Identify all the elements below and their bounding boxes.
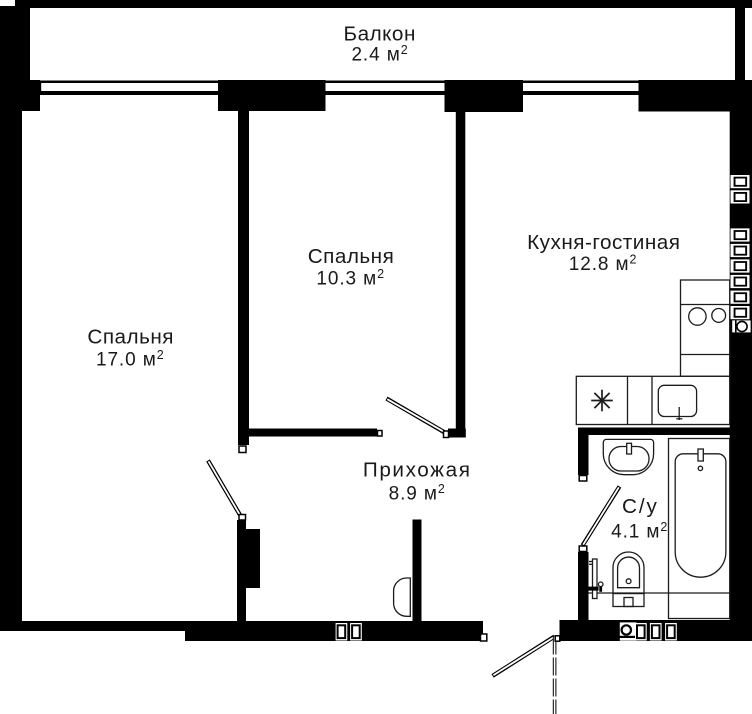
svg-text:2.4 м2: 2.4 м2 (351, 43, 408, 66)
svg-text:4.1 м2: 4.1 м2 (611, 520, 668, 543)
svg-text:Прихожая: Прихожая (363, 459, 472, 482)
svg-text:12.8 м2: 12.8 м2 (569, 253, 638, 276)
svg-text:8.9 м2: 8.9 м2 (389, 482, 446, 505)
svg-text:10.3 м2: 10.3 м2 (316, 267, 385, 290)
svg-text:Спальня: Спальня (308, 245, 395, 268)
svg-text:Кухня-гостиная: Кухня-гостиная (527, 231, 680, 254)
svg-text:17.0 м2: 17.0 м2 (96, 348, 165, 371)
svg-text:С/у: С/у (622, 495, 659, 518)
svg-text:Спальня: Спальня (87, 326, 174, 349)
